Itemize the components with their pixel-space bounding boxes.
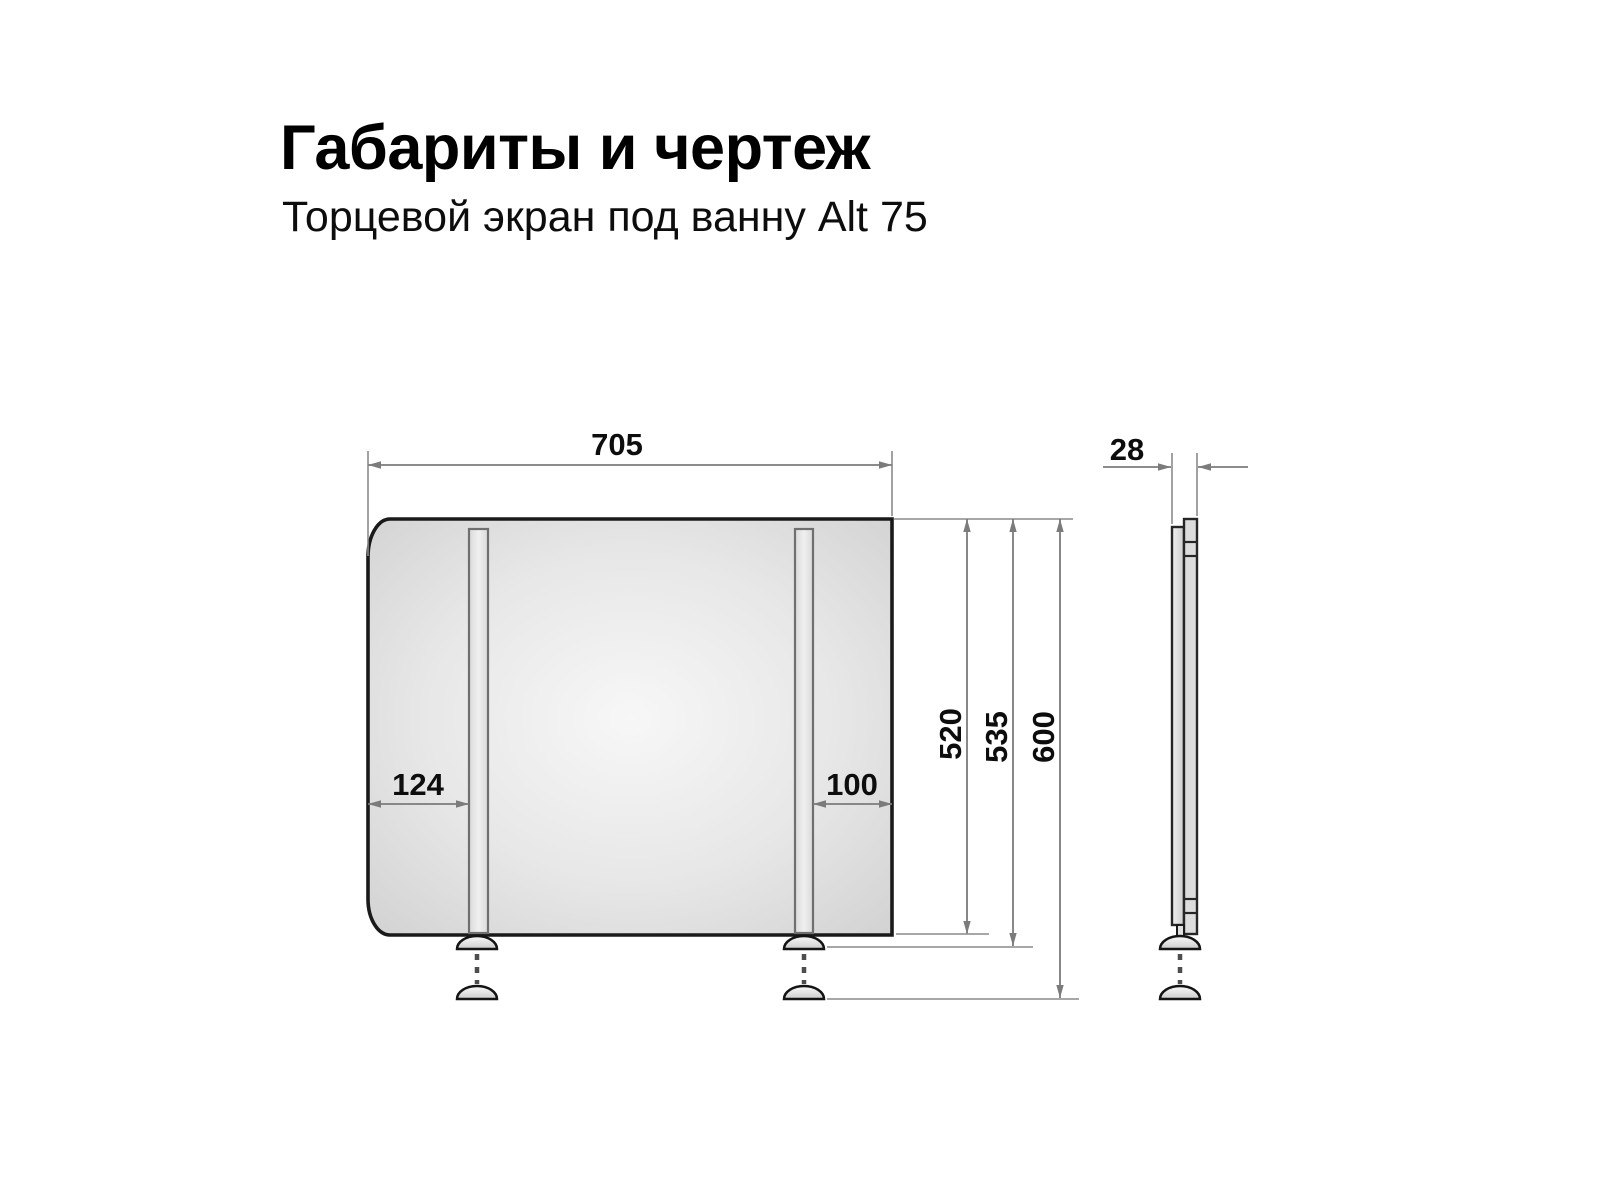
front-view xyxy=(368,519,892,999)
dim-value-width: 705 xyxy=(591,427,643,462)
dim-value-panel-height: 520 xyxy=(933,708,968,760)
dim-value-left-offset: 124 xyxy=(392,767,444,802)
right-rail xyxy=(795,529,813,933)
side-rail-slab xyxy=(1184,519,1197,934)
left-rail xyxy=(469,529,488,933)
dimension-thickness-28: 28 xyxy=(1103,432,1248,524)
side-view xyxy=(1160,519,1200,999)
side-panel-slab xyxy=(1172,527,1184,925)
technical-drawing: 705 124 100 520 535 600 xyxy=(0,0,1600,1200)
right-foot-dome-extended xyxy=(784,986,824,999)
dim-value-max-height: 600 xyxy=(1026,711,1061,763)
right-foot-dome xyxy=(784,936,824,949)
dim-value-right-offset: 100 xyxy=(826,767,878,802)
dim-value-height-with-feet: 535 xyxy=(979,711,1014,763)
right-foot xyxy=(784,936,824,999)
left-foot-dome-extended xyxy=(457,986,497,999)
page: Габариты и чертеж Торцевой экран под ван… xyxy=(0,0,1600,1200)
side-foot-dome-extended xyxy=(1160,986,1200,999)
dim-value-thickness: 28 xyxy=(1110,432,1144,467)
left-foot xyxy=(457,936,497,999)
left-foot-dome xyxy=(457,936,497,949)
side-foot-dome xyxy=(1160,936,1200,949)
